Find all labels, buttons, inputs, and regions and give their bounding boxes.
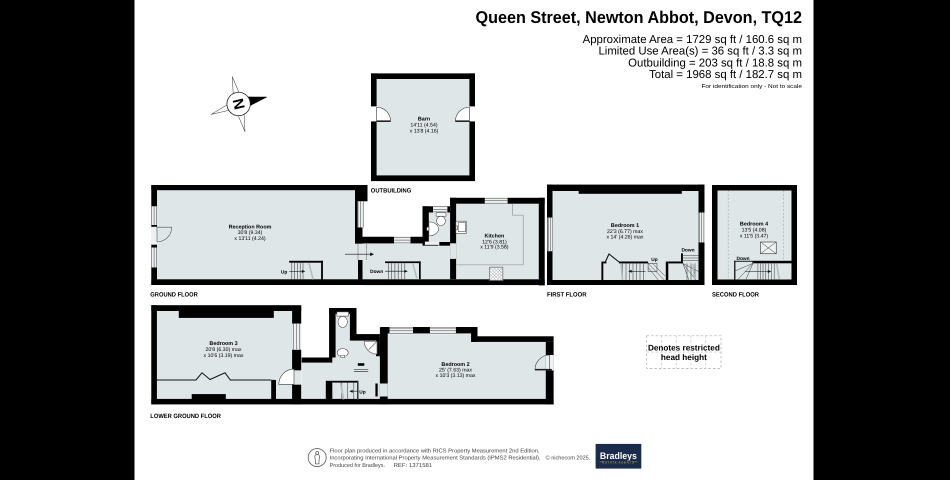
svg-text:Outbuilding = 203 sq ft / 18.8: Outbuilding = 203 sq ft / 18.8 sq m bbox=[628, 57, 802, 69]
svg-text:Queen Street, Newton Abbot, De: Queen Street, Newton Abbot, Devon, TQ12 bbox=[476, 8, 803, 27]
svg-text:ESTATE AGENTS: ESTATE AGENTS bbox=[602, 460, 634, 464]
svg-text:x 11'5 (3.47): x 11'5 (3.47) bbox=[740, 233, 769, 239]
svg-text:x 11'9 (3.58): x 11'9 (3.58) bbox=[480, 245, 509, 251]
svg-text:LOWER GROUND FLOOR: LOWER GROUND FLOOR bbox=[150, 413, 221, 420]
svg-text:© nichecom 2025.: © nichecom 2025. bbox=[546, 455, 591, 462]
svg-text:x 10'3 (3.13) max: x 10'3 (3.13) max bbox=[436, 373, 476, 379]
svg-text:Down: Down bbox=[370, 269, 383, 275]
svg-text:Produced for Bradleys.: Produced for Bradleys. bbox=[330, 462, 386, 469]
svg-text:Limited Use Area(s) = 36 sq ft: Limited Use Area(s) = 36 sq ft / 3.3 sq … bbox=[598, 46, 802, 58]
svg-text:Down: Down bbox=[681, 248, 694, 254]
svg-text:Approximate Area = 1729 sq ft: Approximate Area = 1729 sq ft / 160.6 sq… bbox=[583, 34, 802, 46]
svg-text:FIRST FLOOR: FIRST FLOOR bbox=[547, 291, 587, 298]
svg-text:OUTBUILDING: OUTBUILDING bbox=[371, 188, 412, 195]
svg-text:x 10'6 (3.19) max: x 10'6 (3.19) max bbox=[204, 353, 244, 359]
svg-text:Down: Down bbox=[737, 256, 750, 262]
svg-text:Incorporating International Pr: Incorporating International Property Mea… bbox=[330, 455, 541, 462]
svg-text:GROUND FLOOR: GROUND FLOOR bbox=[150, 291, 198, 298]
svg-text:x 13'8 (4.16): x 13'8 (4.16) bbox=[410, 128, 439, 134]
svg-text:x 14' (4.26) max: x 14' (4.26) max bbox=[606, 235, 643, 241]
svg-text:Up: Up bbox=[281, 269, 287, 275]
svg-text:For identification only - Not: For identification only - Not to scale bbox=[702, 83, 803, 90]
svg-text:SECOND FLOOR: SECOND FLOOR bbox=[712, 291, 759, 298]
svg-text:head height: head height bbox=[661, 353, 707, 362]
svg-text:x 13'11 (4.24): x 13'11 (4.24) bbox=[234, 236, 265, 242]
svg-text:Up: Up bbox=[651, 257, 657, 263]
svg-text:Floor plan produced in accorda: Floor plan produced in accordance with R… bbox=[330, 447, 540, 454]
svg-text:REF: 1371581: REF: 1371581 bbox=[394, 463, 433, 469]
svg-text:Up: Up bbox=[359, 389, 365, 395]
svg-text:Denotes restricted: Denotes restricted bbox=[648, 343, 720, 352]
svg-text:Total = 1968 sq ft / 182.7 sq: Total = 1968 sq ft / 182.7 sq m bbox=[649, 69, 802, 81]
